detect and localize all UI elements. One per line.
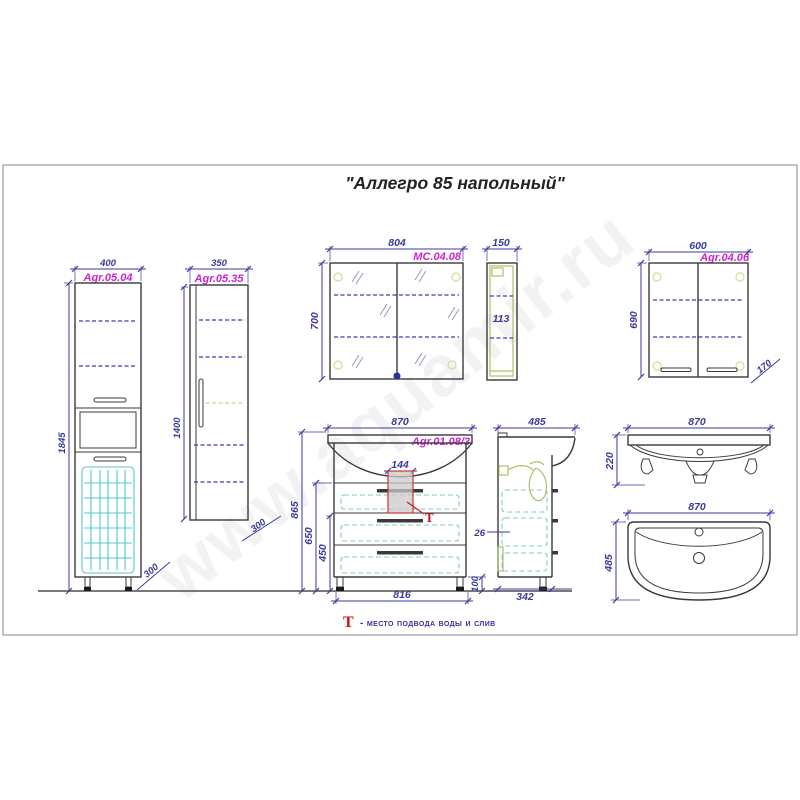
handle-tick [552,519,558,523]
drawers-height-dim: 650 [303,527,315,545]
side-flare [641,459,653,474]
width-dim: 600 [689,240,707,252]
laundry-basket-icon [82,467,134,573]
product-code: Agr.05.04 [83,272,133,284]
side-width-dim: 150 [492,237,510,249]
vanity-side-view: 485 26 342 [473,416,580,603]
height-dim: 1845 [57,432,68,454]
hinge-hole [452,273,460,281]
width-dim: 870 [688,416,706,428]
basket-vertical-wires [91,470,125,570]
product-code: Agr.01.08/3 [411,436,470,448]
faucet-hole [695,528,703,536]
sink-inner-rim [635,528,763,593]
legend: Т - место подвода воды и слив [343,614,496,631]
product-code: Agr.04.06 [699,252,750,264]
hinge-hole [736,273,744,281]
knob-dot [394,373,401,380]
open-niche [80,412,136,448]
leg-foot [456,587,464,591]
drain-hole [694,553,705,564]
gap-dim: 26 [473,528,485,539]
drain-top [530,462,544,465]
leg [85,577,90,587]
width-dim: 870 [391,416,409,428]
mirror-glare-icon [380,304,391,317]
inner-height-dim: 113 [493,313,510,325]
hinge-hole [653,362,661,370]
leg-height-dim: 100 [470,575,481,592]
page-title: "Аллегро 85 напольный" [345,173,565,193]
basket-handle [94,457,126,461]
width-dim: 350 [211,258,228,269]
drawer-inner-dashed [502,490,547,512]
height-dim: 700 [309,312,321,330]
drawer-handle [377,551,423,555]
depth-dim: 170 [755,357,775,376]
sink-outline [628,522,770,600]
height-dim: 1400 [172,417,183,439]
height-dim: 865 [289,501,301,519]
sink-overhang-curve [552,438,575,466]
water-supply-marker: Т [425,510,434,525]
leg-foot [84,587,91,591]
plumbing-trap-icon [498,462,547,571]
door-handle [94,398,126,402]
handle-tick [552,489,558,493]
faucet-hole [697,449,703,455]
bowl-curve [686,461,714,475]
height-dim: 220 [604,452,616,471]
drawer-handle [377,519,423,523]
technical-drawing: www.aquamir.ru "Аллегро 85 напольный" 40… [0,0,800,800]
basin-back-curve [636,532,762,546]
supply-box [499,466,508,475]
drawer-inner-dashed [341,525,459,541]
depth-dim: 485 [527,416,546,428]
leg-foot [125,587,132,591]
leg [540,577,546,587]
leg [337,577,343,587]
drain-outline [693,475,707,483]
base-width-dim: 816 [393,589,411,601]
legend-marker-symbol: Т [343,614,354,631]
side-flare [745,459,757,474]
hinge-hole [334,273,342,281]
handle-tick [552,551,558,555]
vertical-handle [199,379,203,427]
hinge-hole [334,361,342,369]
drawer-inner-dashed [502,553,547,571]
siphon-width-dim: 144 [391,459,409,471]
legend-text: - место подвода воды и слив [360,618,496,629]
leg [457,577,463,587]
product-code: МС.04.08 [413,251,462,263]
base-depth-dim: 342 [516,591,534,603]
width-dim: 400 [99,258,117,269]
siphon-trap [529,468,546,501]
width-dim: 804 [388,237,406,249]
basin-outer-curve [630,445,768,462]
sink-front-view: 870 220 [604,416,775,488]
lower-height-dim: 450 [317,544,329,563]
depth-dim: 485 [603,554,615,573]
leg-foot [336,587,344,591]
siphon-cutout [388,471,413,513]
height-dim: 690 [628,311,640,329]
supply-hose [508,466,534,471]
sink-plan-view: 870 485 [603,501,775,603]
drawer-inner-dashed [341,557,459,573]
door-handle [661,368,691,372]
product-code: Agr.05.35 [194,273,245,285]
rim-band [628,435,770,445]
hinge-hole [653,273,661,281]
mirror-glare-icon [352,355,363,368]
wall-cabinet-view: 600 Agr.04.06 690 170 [628,240,780,383]
mirror-glare-icon [352,271,363,284]
mirror-glare-icon [415,269,426,282]
leg [126,577,131,587]
door-handle [707,368,737,372]
width-dim: 870 [688,501,706,513]
drawing-page: www.aquamir.ru "Аллегро 85 напольный" 40… [0,0,800,800]
